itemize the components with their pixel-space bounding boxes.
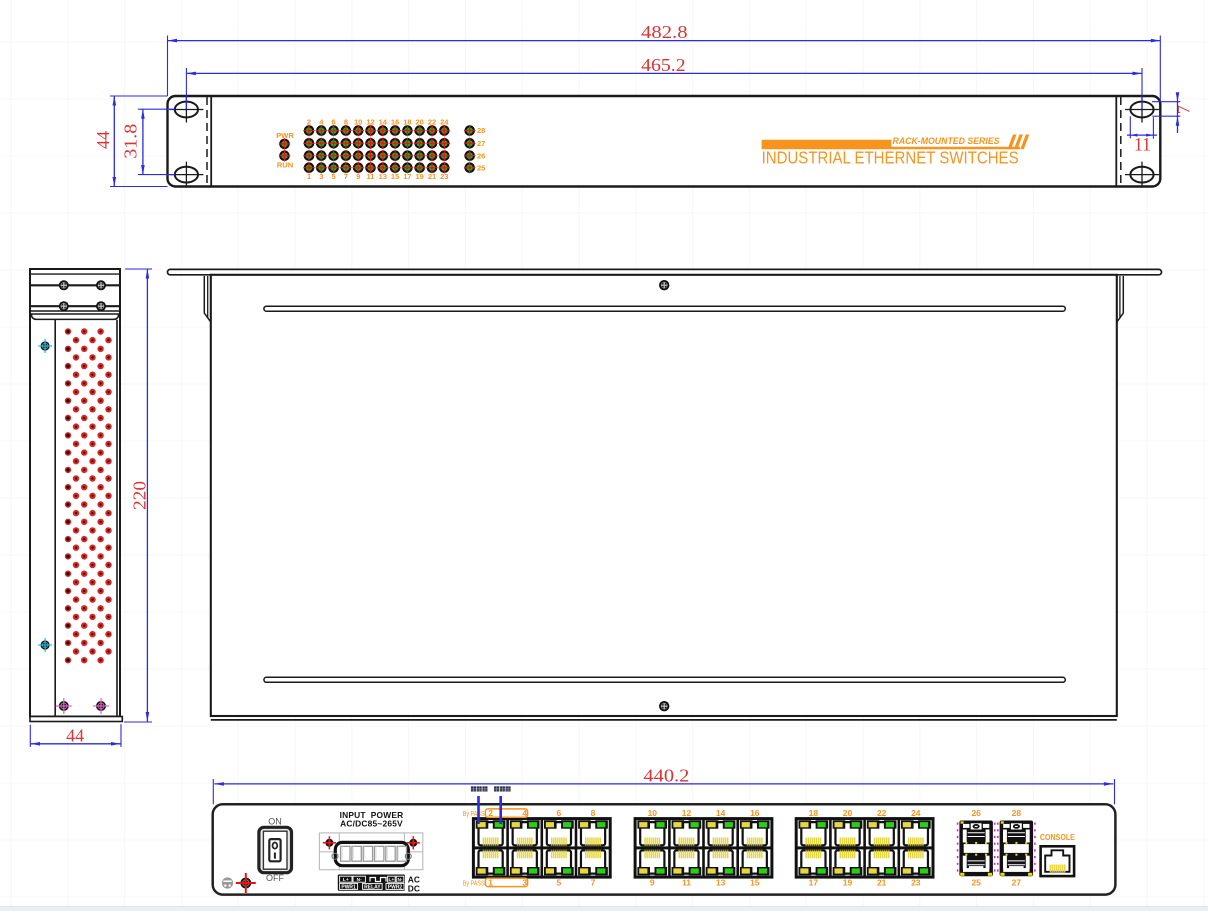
- svg-text:1: 1: [307, 172, 311, 181]
- svg-text:PWR: PWR: [276, 131, 294, 140]
- svg-text:5: 5: [557, 878, 562, 888]
- svg-text:11: 11: [367, 172, 375, 181]
- svg-text:17: 17: [403, 172, 411, 181]
- svg-text:PWR1: PWR1: [341, 884, 356, 890]
- svg-text:21: 21: [428, 172, 436, 181]
- svg-text:14: 14: [716, 808, 726, 818]
- svg-text:By PASS: By PASS: [463, 879, 485, 888]
- svg-text:465.2: 465.2: [641, 55, 686, 75]
- svg-text:8: 8: [591, 808, 596, 818]
- svg-text:17: 17: [809, 878, 819, 888]
- svg-text:6: 6: [557, 808, 562, 818]
- svg-text:9: 9: [356, 172, 360, 181]
- svg-text:44: 44: [66, 726, 84, 746]
- svg-text:19: 19: [843, 878, 853, 888]
- svg-text:N-: N-: [397, 877, 402, 883]
- svg-text:13: 13: [379, 172, 387, 181]
- svg-text:25: 25: [477, 163, 485, 172]
- svg-text:RACK-MOUNTED SERIES: RACK-MOUNTED SERIES: [893, 136, 1001, 147]
- svg-text:CONSOLE: CONSOLE: [1040, 833, 1075, 842]
- svg-text:INDUSTRIAL ETHERNET SWITCHES: INDUSTRIAL ETHERNET SWITCHES: [762, 148, 1019, 168]
- svg-text:ON: ON: [268, 817, 282, 827]
- svg-text:3: 3: [319, 172, 323, 181]
- svg-text:28: 28: [1012, 808, 1022, 818]
- svg-text:19: 19: [416, 172, 424, 181]
- svg-text:15: 15: [391, 172, 399, 181]
- svg-text:DC: DC: [408, 883, 420, 893]
- svg-text:RELAY: RELAY: [364, 884, 381, 890]
- svg-text:27: 27: [477, 139, 485, 148]
- svg-text:RUN: RUN: [277, 161, 293, 170]
- svg-text:22: 22: [877, 808, 887, 818]
- svg-text:18: 18: [809, 808, 819, 818]
- svg-text:9: 9: [650, 878, 655, 888]
- svg-text:23: 23: [911, 878, 921, 888]
- svg-text:11: 11: [682, 878, 691, 888]
- svg-text:26: 26: [971, 808, 981, 818]
- svg-text:23: 23: [440, 172, 448, 181]
- svg-text:7: 7: [344, 172, 348, 181]
- svg-text:482.8: 482.8: [641, 22, 688, 42]
- svg-text:OFF: OFF: [266, 873, 284, 883]
- svg-text:28: 28: [477, 126, 485, 135]
- svg-text:12: 12: [682, 808, 692, 818]
- svg-text:11: 11: [1134, 136, 1151, 156]
- svg-text:5: 5: [332, 172, 336, 181]
- svg-text:7: 7: [591, 878, 596, 888]
- svg-text:20: 20: [843, 808, 853, 818]
- svg-text:7: 7: [1173, 105, 1193, 114]
- svg-text:440.2: 440.2: [643, 766, 689, 786]
- svg-text:44: 44: [93, 131, 113, 149]
- svg-text:25: 25: [971, 878, 981, 888]
- svg-text:10: 10: [648, 808, 658, 818]
- svg-text:L+: L+: [389, 877, 395, 883]
- svg-text:220: 220: [129, 481, 149, 510]
- svg-text:21: 21: [877, 878, 887, 888]
- svg-text:24: 24: [911, 808, 921, 818]
- svg-text:26: 26: [477, 151, 485, 160]
- svg-text:L+: L+: [343, 877, 349, 883]
- svg-text:13: 13: [716, 878, 726, 888]
- svg-text:By PASS: By PASS: [463, 809, 485, 818]
- svg-text:PWR2: PWR2: [388, 884, 403, 890]
- svg-text:27: 27: [1012, 878, 1022, 888]
- svg-text:31.8: 31.8: [120, 124, 140, 159]
- svg-text:N-: N-: [357, 877, 362, 883]
- svg-text:16: 16: [750, 808, 760, 818]
- svg-text:AC/DC85~265V: AC/DC85~265V: [340, 819, 403, 829]
- svg-text:15: 15: [750, 878, 760, 888]
